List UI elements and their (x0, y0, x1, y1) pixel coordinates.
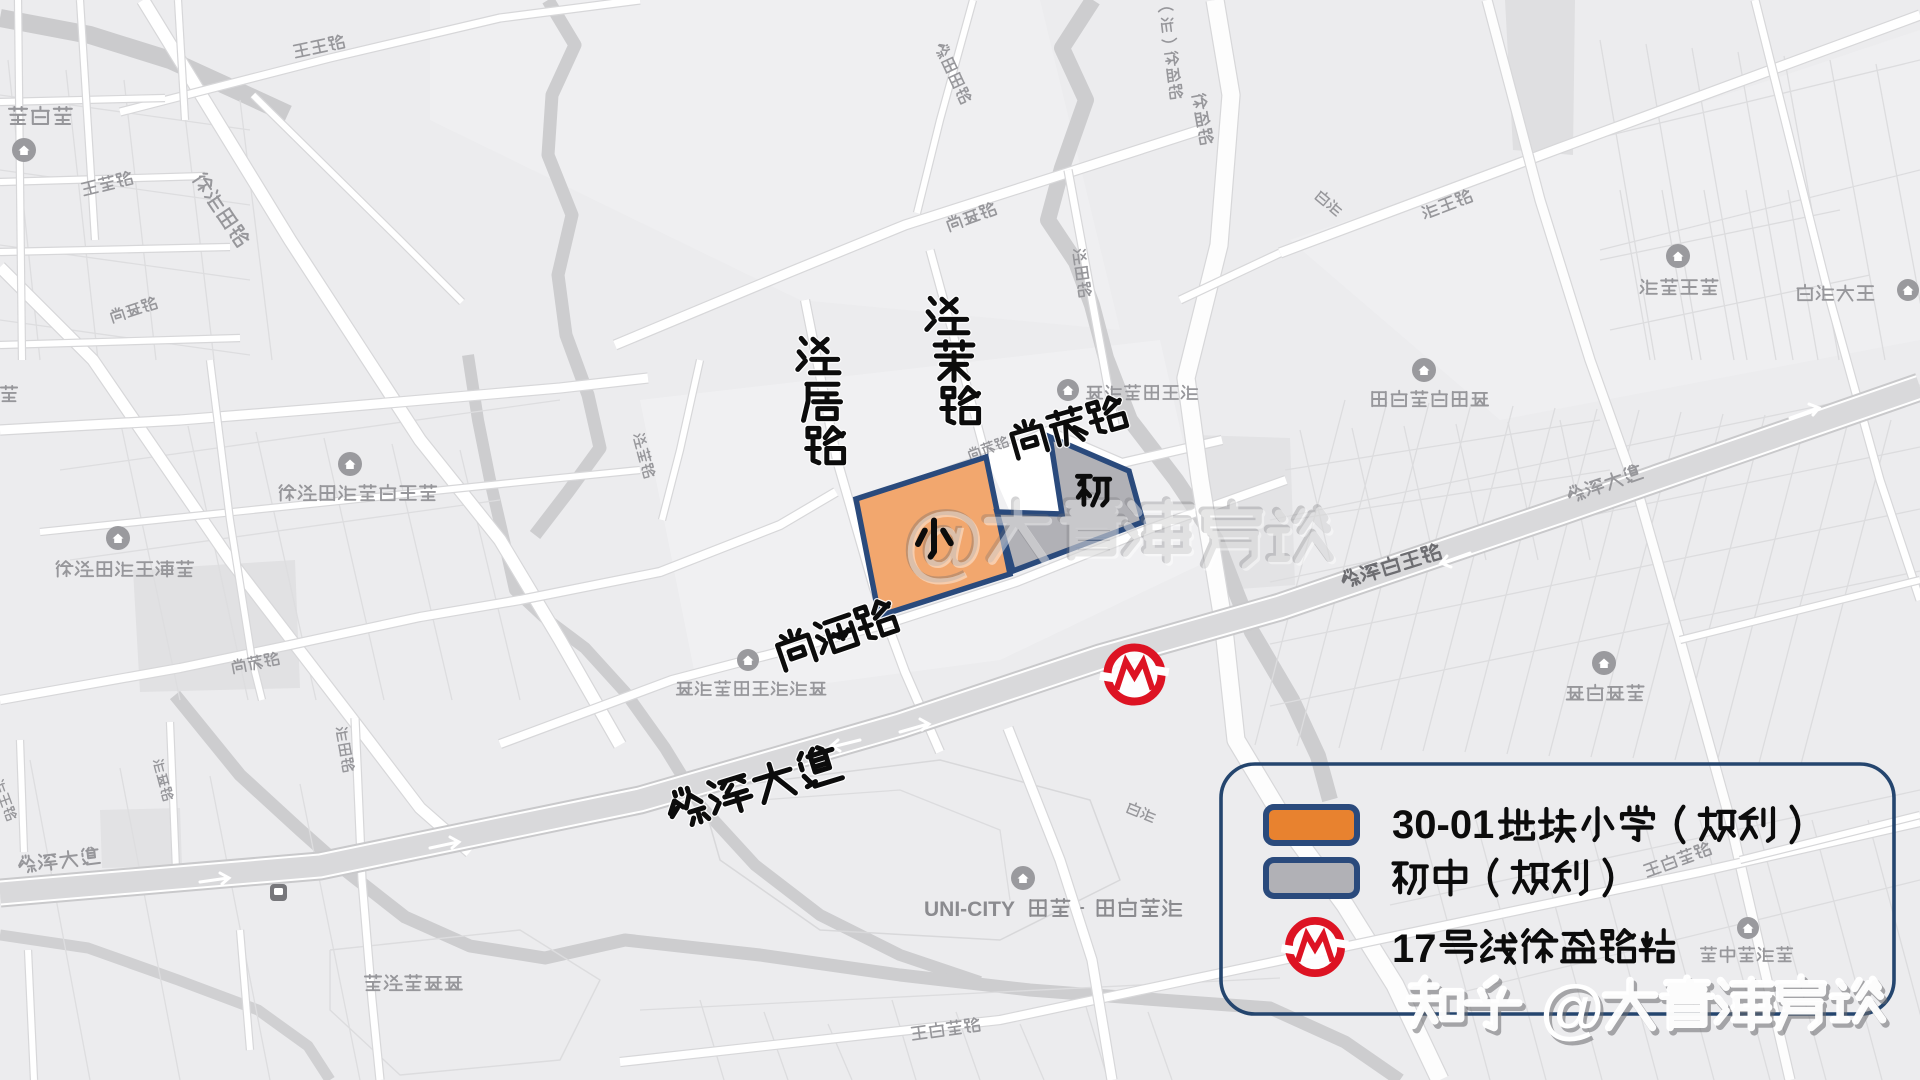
svg-text:UNI-CITY: UNI-CITY (924, 898, 1015, 921)
svg-text:@: @ (903, 495, 985, 589)
svg-text:@: @ (1540, 971, 1604, 1045)
svg-text:17: 17 (1392, 927, 1437, 971)
svg-text:30-01: 30-01 (1392, 803, 1494, 847)
